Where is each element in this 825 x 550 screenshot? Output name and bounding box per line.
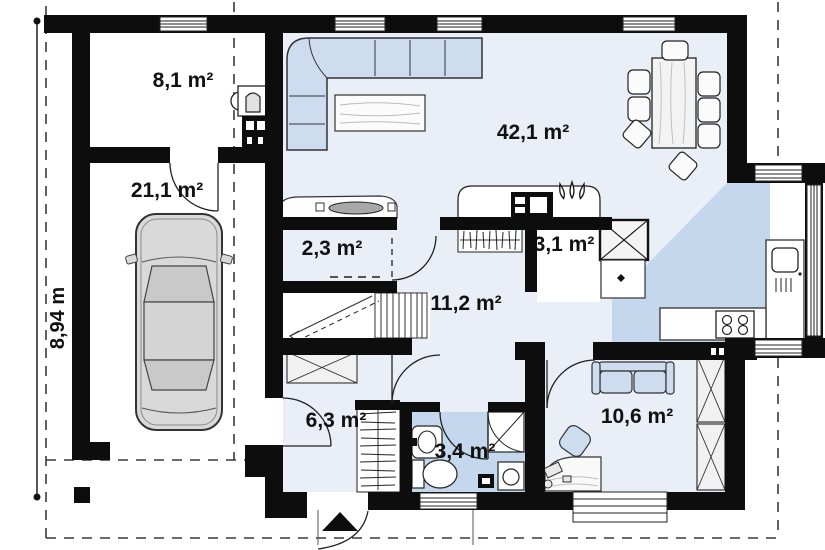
window-kitchen-top <box>755 165 802 181</box>
window-living-2 <box>437 17 482 31</box>
window-dining <box>623 17 675 31</box>
tv-screen <box>329 202 383 214</box>
washing-machine <box>498 462 524 490</box>
car <box>125 214 233 430</box>
coat-rack <box>458 228 522 252</box>
fence-pillar <box>74 487 90 503</box>
chimney-shaft <box>600 220 648 298</box>
room-label-storage: 8,1 m² <box>153 69 214 92</box>
room-label-office: 10,6 m² <box>601 405 673 428</box>
toilet <box>412 460 457 488</box>
entrance-arrow <box>322 512 358 531</box>
window-office <box>573 492 667 522</box>
window-living-1 <box>335 17 385 31</box>
car-roof <box>144 302 214 360</box>
wardrobe-under-stairs <box>287 352 357 383</box>
coffee-table <box>335 95 425 131</box>
dimension-line: 8,94 m <box>34 18 70 501</box>
boiler <box>231 86 266 116</box>
bathroom-cabinet <box>478 474 494 488</box>
floor-plan-svg: 8,94 m <box>0 0 825 550</box>
fireplace <box>458 182 600 218</box>
room-label-garage: 21,1 m² <box>131 179 203 202</box>
storage-chimney <box>242 116 268 150</box>
room-label-bathroom: 3,4 m² <box>435 440 496 463</box>
dimension-label: 8,94 m <box>47 287 69 349</box>
car-windshield <box>144 266 214 302</box>
window-storage <box>160 17 207 31</box>
room-label-closet: 3,1 m² <box>534 233 595 256</box>
room-label-pantry: 2,3 m² <box>302 237 363 260</box>
window-kitchen-bottom <box>755 340 802 356</box>
dining-table <box>652 58 696 148</box>
room-label-hall: 11,2 m² <box>430 292 501 315</box>
stove <box>716 311 754 338</box>
floor-plan: 8,94 m <box>0 0 825 550</box>
wall-vent-marks <box>711 348 716 355</box>
room-label-vestibule: 6,3 m² <box>306 409 367 432</box>
tv-cabinet <box>280 196 397 218</box>
window-bathroom <box>420 493 477 509</box>
window-kitchen-right <box>807 185 821 336</box>
room-label-living: 42,1 m² <box>497 121 569 144</box>
car-rear-window <box>144 360 214 390</box>
